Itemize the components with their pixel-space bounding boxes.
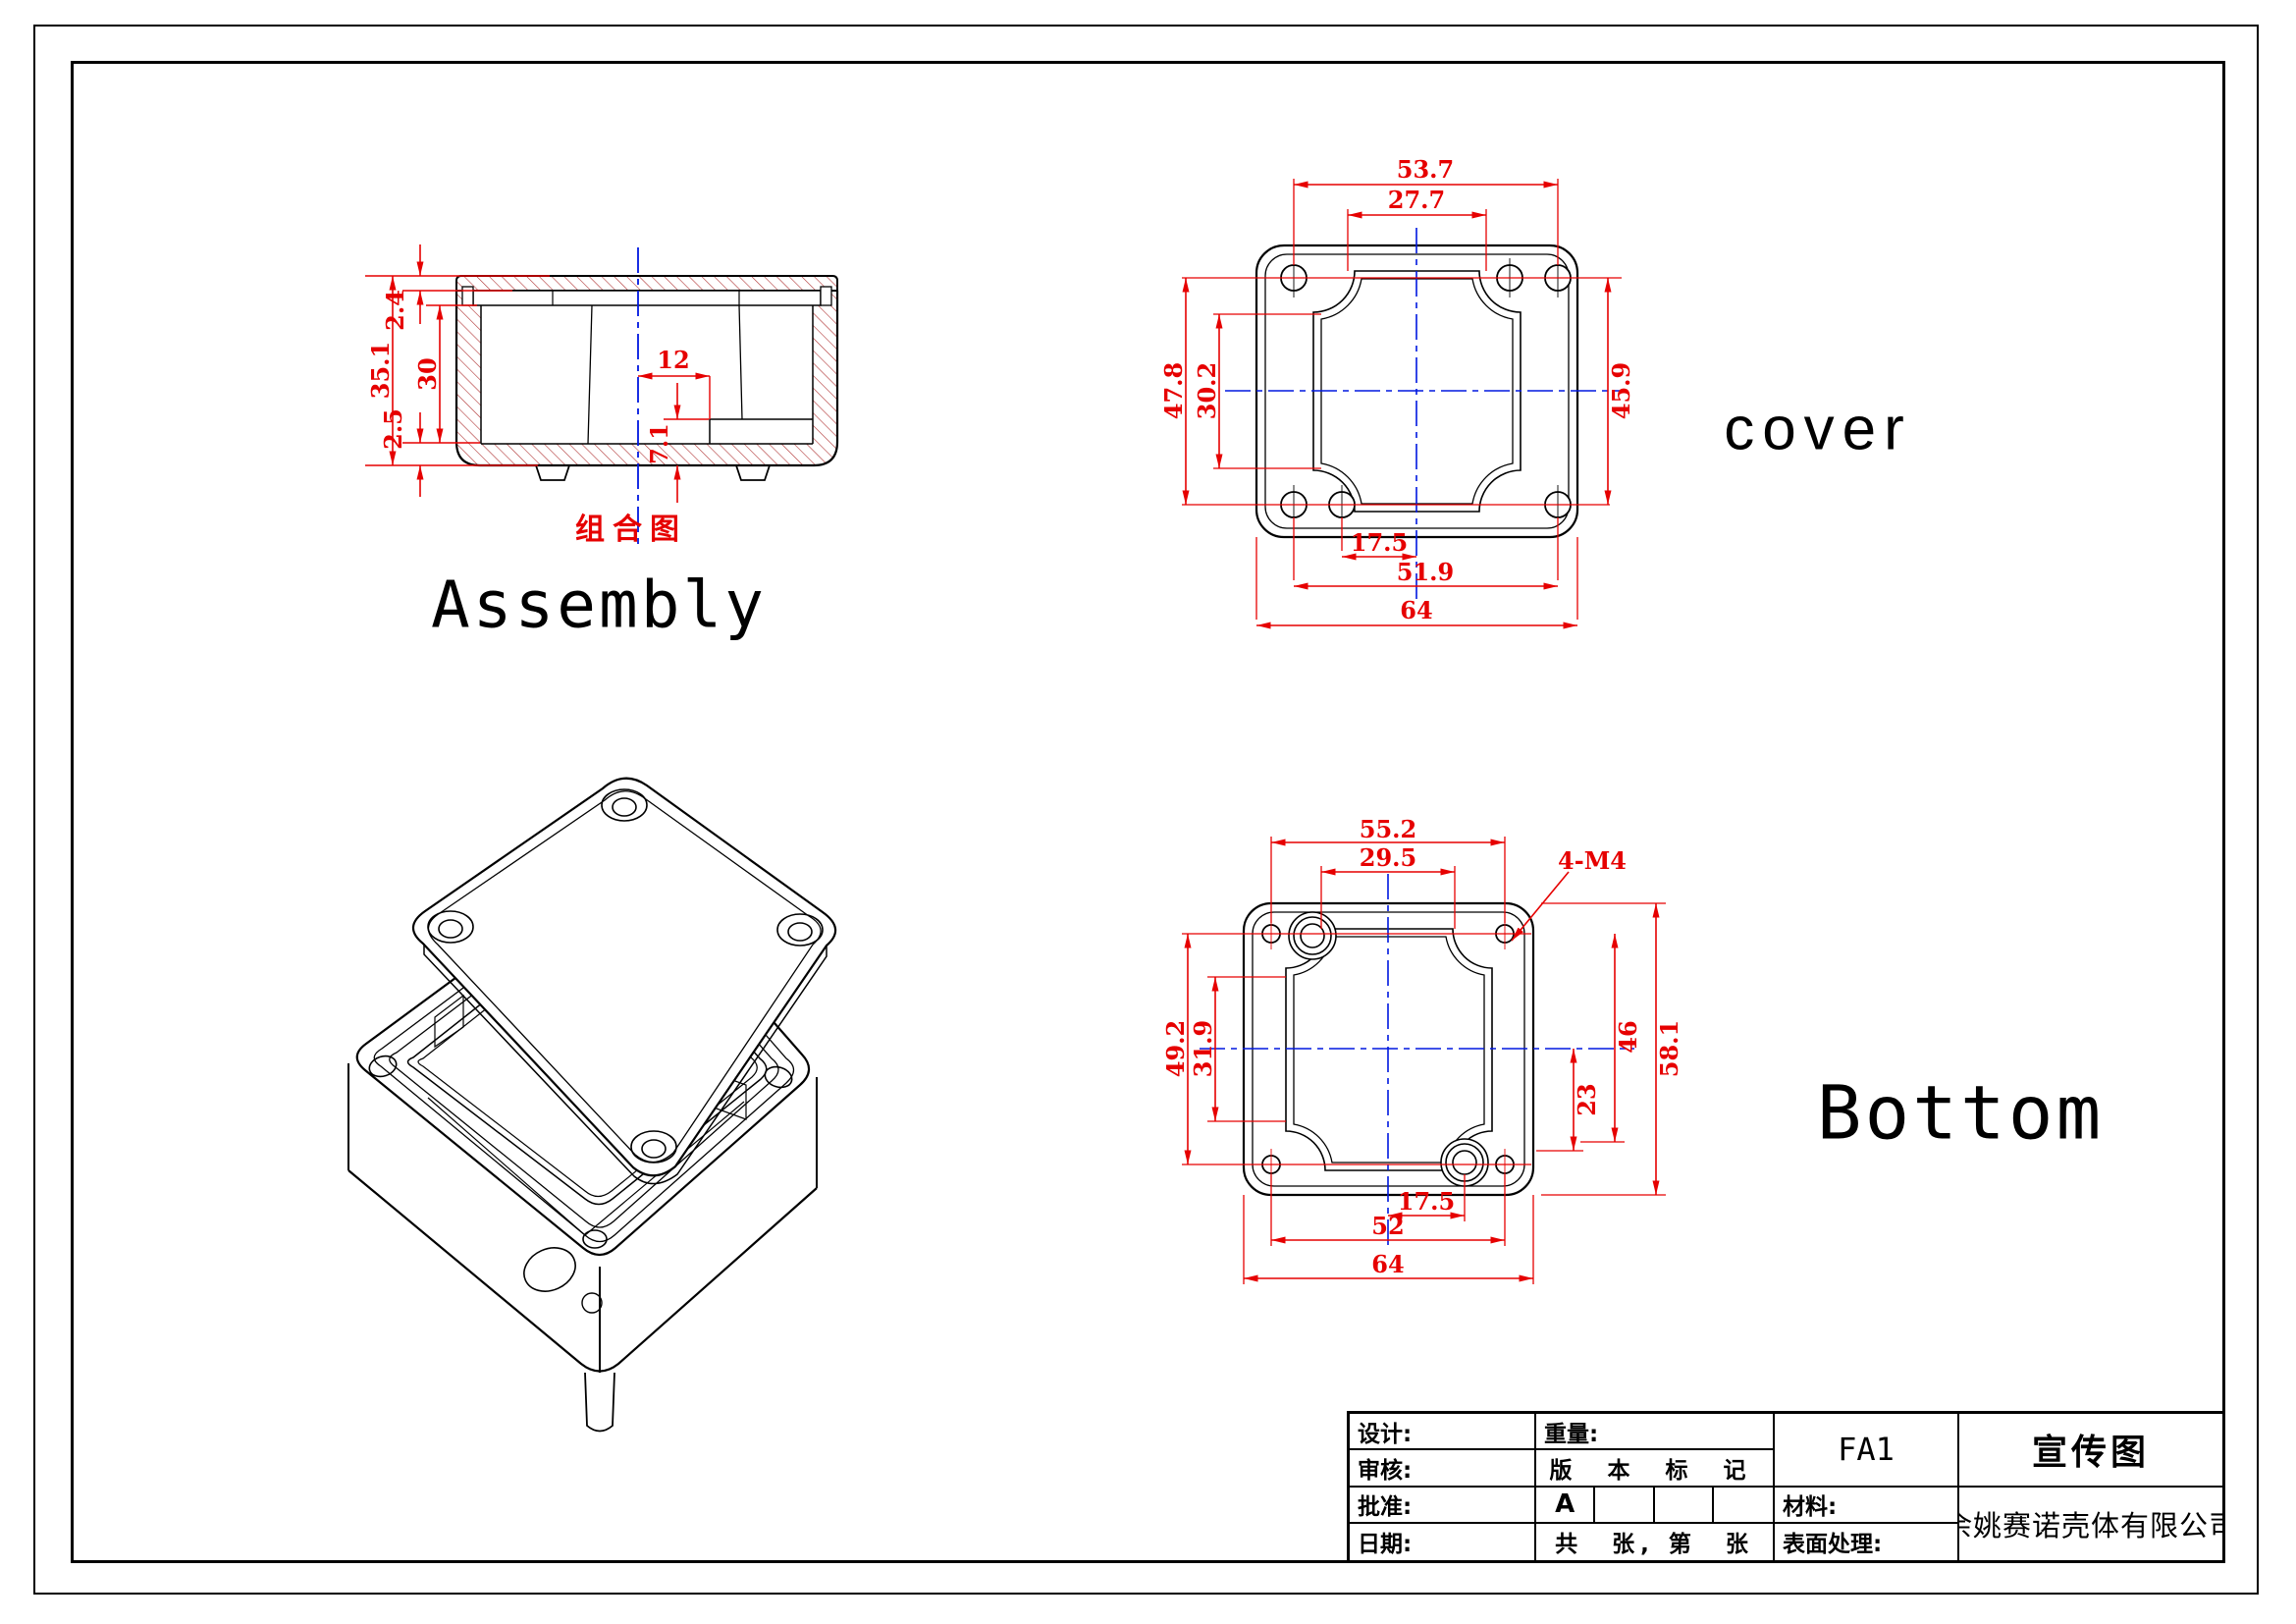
title-block-surface-label: 表面处理:	[1775, 1524, 1959, 1560]
dim-assembly-boss-offset: 12	[657, 349, 689, 372]
dim-assembly-boss-height: 7.1	[648, 423, 671, 464]
callout-bottom-thread: 4-M4	[1558, 849, 1627, 873]
dim-cover-hole-span-bottom: 51.9	[1397, 561, 1454, 584]
dim-assembly-cavity-depth: 30	[416, 357, 440, 390]
title-block-approve-label: 批准:	[1350, 1488, 1536, 1524]
dim-bottom-window-height: 31.9	[1192, 1020, 1215, 1077]
dim-bottom-hole-span-right: 46	[1617, 1020, 1640, 1053]
title-block-revision-cell-3	[1655, 1488, 1714, 1522]
dim-bottom-hole-span-bottom: 52	[1371, 1215, 1404, 1238]
dim-cover-overall-width: 64	[1400, 599, 1432, 623]
title-block-weight-label: 重量:	[1536, 1414, 1775, 1450]
drawing-sheet: 35.1 2.4 30 2.5 12 7.1 组合图 Assembly 53.7…	[0, 0, 2296, 1624]
dim-assembly-base-thickness: 2.5	[382, 408, 405, 450]
title-block-review-label: 审核:	[1350, 1450, 1536, 1487]
dim-cover-hole-span-left: 47.8	[1162, 362, 1186, 419]
assembly-title-chinese: 组合图	[575, 505, 687, 548]
cover-title: cover	[1724, 395, 1912, 464]
title-block-date-label: 日期:	[1350, 1524, 1536, 1560]
title-block-company: 余姚赛诺壳体有限公司	[1959, 1488, 2222, 1561]
title-block-sheet-note: 共 张, 第 张	[1536, 1524, 1775, 1560]
title-block-design-label: 设计:	[1350, 1414, 1536, 1450]
dim-cover-hole-span-top: 53.7	[1397, 158, 1454, 182]
dim-cover-window-height: 30.2	[1196, 362, 1219, 419]
title-block-drawing-name: 宣传图	[1959, 1414, 2222, 1488]
title-block-revision-row: A	[1536, 1488, 1775, 1524]
dim-assembly-lid-thickness: 2.4	[384, 290, 407, 331]
dim-bottom-overall-width: 64	[1371, 1253, 1404, 1276]
drawing-linework	[0, 0, 2296, 1624]
dim-cover-hole-span-right: 45.9	[1610, 362, 1633, 419]
dim-cover-hole-offset-bottom: 17.5	[1351, 531, 1408, 555]
title-block-revision: A	[1536, 1488, 1595, 1522]
dim-bottom-overall-height: 58.1	[1658, 1020, 1682, 1077]
dim-bottom-hole-span-top: 55.2	[1360, 818, 1416, 841]
title-block: 设计: 重量: FA1 宣传图 审核: 版 本 标 记 批准: A 材料: 余姚…	[1347, 1411, 2225, 1563]
assembly-title: Assembly	[431, 568, 767, 643]
title-block-part-code: FA1	[1775, 1414, 1959, 1488]
title-block-version-label: 版 本 标 记	[1536, 1450, 1775, 1487]
dim-cover-window-width: 27.7	[1388, 189, 1445, 212]
title-block-material-label: 材料:	[1775, 1488, 1959, 1524]
dim-bottom-window-width: 29.5	[1360, 846, 1416, 870]
title-block-revision-cell-4	[1714, 1488, 1773, 1522]
dim-assembly-overall-height: 35.1	[369, 342, 393, 399]
title-block-revision-cell-2	[1595, 1488, 1654, 1522]
bottom-title: Bottom	[1817, 1069, 2105, 1157]
dim-bottom-hole-span-left: 49.2	[1164, 1020, 1188, 1077]
isometric-view	[348, 779, 835, 1432]
assembly-section-view	[365, 244, 837, 546]
dim-bottom-hole-offset-bottom: 17.5	[1398, 1190, 1455, 1214]
dim-bottom-hole-offset-right: 23	[1575, 1083, 1599, 1115]
bottom-view	[1182, 837, 1666, 1284]
